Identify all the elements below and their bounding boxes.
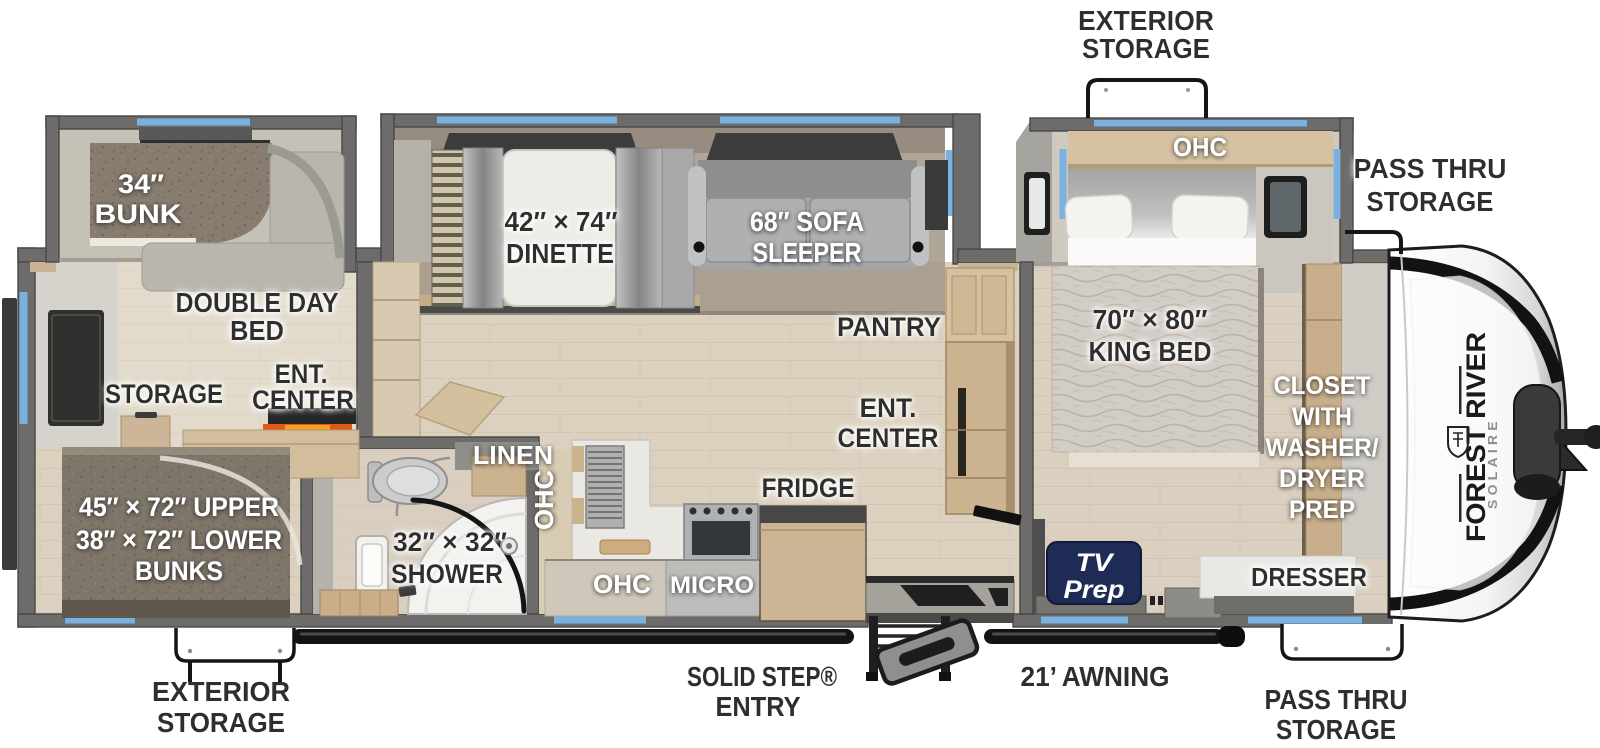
svg-text:70″ × 80″: 70″ × 80″ xyxy=(1093,304,1208,335)
svg-text:45″ × 72″ UPPER: 45″ × 72″ UPPER xyxy=(79,492,279,522)
svg-text:BUNK: BUNK xyxy=(95,199,183,229)
svg-text:BED: BED xyxy=(230,315,284,346)
svg-text:MICRO: MICRO xyxy=(670,572,754,599)
svg-text:ENTRY: ENTRY xyxy=(716,691,801,722)
svg-text:EXTERIOR: EXTERIOR xyxy=(152,676,290,707)
svg-text:DRESSER: DRESSER xyxy=(1251,562,1367,592)
svg-text:STORAGE: STORAGE xyxy=(105,379,223,409)
svg-text:DINETTE: DINETTE xyxy=(506,238,614,269)
svg-text:STORAGE: STORAGE xyxy=(157,707,285,738)
svg-text:LINEN: LINEN xyxy=(473,440,553,470)
svg-text:OHC: OHC xyxy=(529,470,559,530)
svg-text:ENT.: ENT. xyxy=(860,393,917,423)
svg-text:PASS THRU: PASS THRU xyxy=(1265,684,1408,715)
svg-text:BUNKS: BUNKS xyxy=(135,556,223,586)
svg-text:FRIDGE: FRIDGE xyxy=(762,473,855,503)
svg-text:CLOSET: CLOSET xyxy=(1274,372,1371,400)
svg-text:TV: TV xyxy=(1076,549,1116,577)
svg-text:PASS THRU: PASS THRU xyxy=(1354,153,1507,184)
svg-text:32″ × 32″: 32″ × 32″ xyxy=(393,527,507,557)
svg-text:STORAGE: STORAGE xyxy=(1276,714,1396,745)
svg-text:CENTER: CENTER xyxy=(838,423,939,453)
svg-text:OHC: OHC xyxy=(593,569,651,599)
svg-text:EXTERIOR: EXTERIOR xyxy=(1078,5,1214,36)
svg-text:34″: 34″ xyxy=(118,169,164,199)
svg-text:CENTER: CENTER xyxy=(252,385,354,415)
svg-text:68″ SOFA: 68″ SOFA xyxy=(750,206,864,237)
svg-text:DRYER: DRYER xyxy=(1279,465,1365,493)
svg-text:SLEEPER: SLEEPER xyxy=(753,237,862,268)
svg-text:SOLID STEP®: SOLID STEP® xyxy=(687,661,837,692)
svg-text:WASHER/: WASHER/ xyxy=(1266,434,1379,462)
svg-text:38″ × 72″ LOWER: 38″ × 72″ LOWER xyxy=(76,525,282,555)
svg-text:PANTRY: PANTRY xyxy=(837,312,941,342)
svg-text:WITH: WITH xyxy=(1292,403,1352,431)
svg-text:DOUBLE DAY: DOUBLE DAY xyxy=(176,287,339,318)
svg-text:21’ AWNING: 21’ AWNING xyxy=(1021,661,1170,692)
svg-text:SHOWER: SHOWER xyxy=(391,559,503,589)
svg-text:42″ × 74″: 42″ × 74″ xyxy=(505,206,618,237)
svg-text:SOLAIRE: SOLAIRE xyxy=(1485,417,1500,509)
svg-text:Prep: Prep xyxy=(1064,576,1125,604)
svg-text:OHC: OHC xyxy=(1173,132,1227,162)
svg-text:KING BED: KING BED xyxy=(1089,336,1212,367)
svg-text:STORAGE: STORAGE xyxy=(1082,33,1210,64)
svg-text:STORAGE: STORAGE xyxy=(1367,186,1494,217)
svg-text:PREP: PREP xyxy=(1289,496,1355,524)
